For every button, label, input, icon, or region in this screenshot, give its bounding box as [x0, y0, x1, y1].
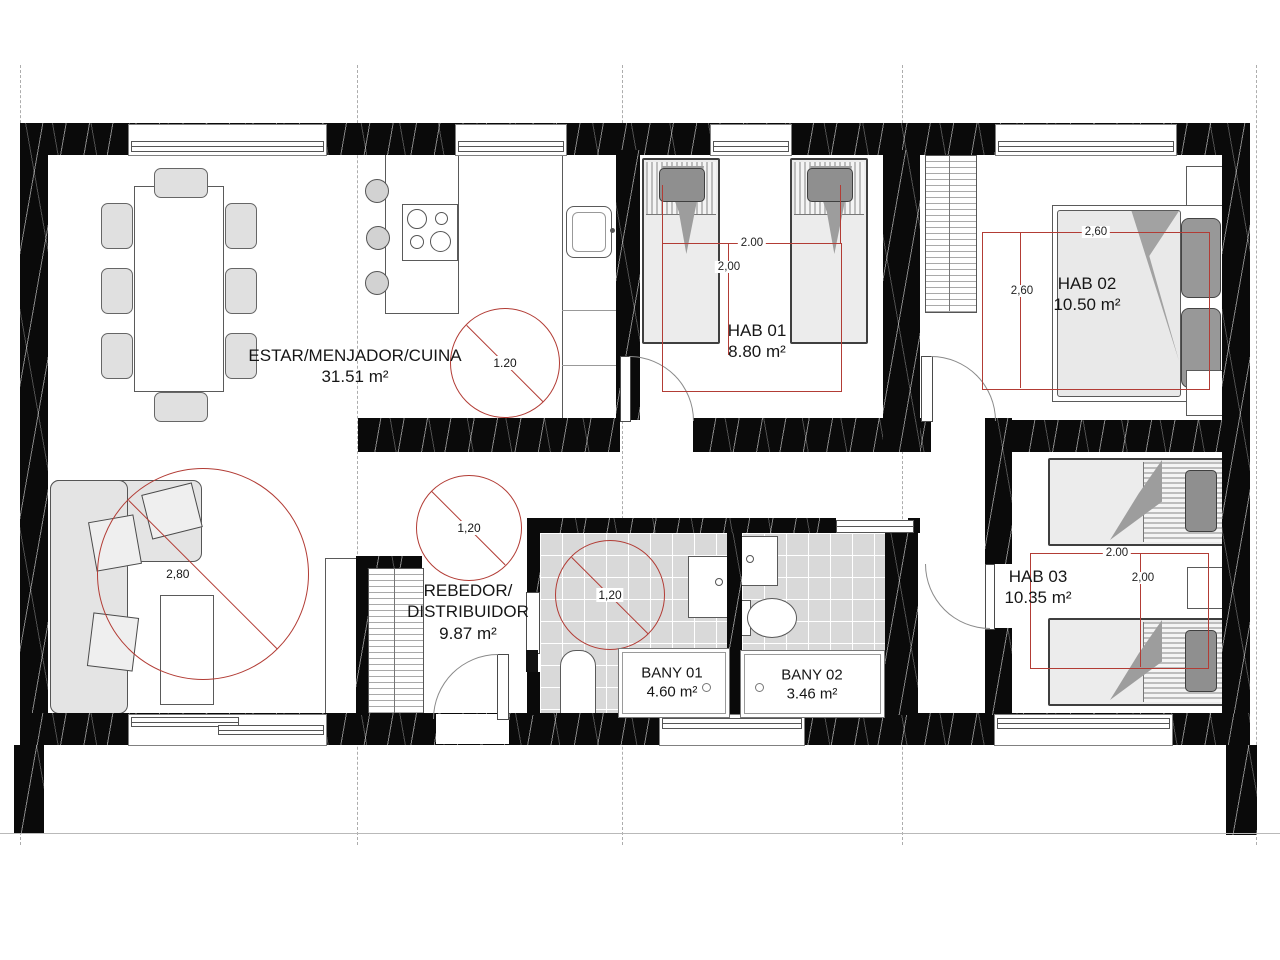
dining-chair — [154, 392, 208, 422]
washbasin — [738, 536, 778, 586]
room-name: BANY 02 — [781, 666, 842, 685]
room-label-hab03: HAB 03 10.35 m² — [1004, 566, 1071, 609]
room-area: 10.35 m² — [1004, 587, 1071, 608]
room-name: HAB 02 — [1053, 273, 1120, 294]
room-name: REBEDOR/ — [407, 580, 529, 601]
dining-chair — [101, 333, 133, 379]
room-label-bany01: BANY 01 4.60 m² — [641, 664, 702, 702]
toilet — [747, 598, 797, 638]
dining-chair — [101, 203, 133, 249]
dimension-label: 2,80 — [164, 567, 191, 581]
window-glazing — [662, 718, 802, 729]
dimension-line — [128, 500, 277, 649]
room-name: BANY 01 — [641, 664, 702, 683]
bar-stool — [365, 179, 389, 203]
bed-pillow — [1185, 470, 1217, 532]
window-glazing — [997, 718, 1170, 729]
room-area: 8.80 m² — [728, 341, 787, 362]
dimension-label: 2.00 — [1103, 547, 1131, 559]
dimension-label: 1.20 — [491, 356, 518, 370]
sink-faucet — [610, 228, 615, 233]
room-label-hab01: HAB 01 8.80 m² — [728, 320, 787, 363]
window-hab01 — [710, 124, 792, 156]
dimension-label: 1,20 — [455, 521, 482, 535]
closet-divider — [394, 568, 395, 714]
interior-wall-hall-north — [358, 418, 620, 452]
turning-circle-bany01: 1,20 — [555, 540, 665, 650]
burner — [407, 209, 427, 229]
dimension-line — [1140, 553, 1141, 667]
basin-faucet — [746, 555, 754, 563]
closet-wall — [356, 556, 422, 568]
terrace-wall-right — [1226, 745, 1257, 835]
dimension-label: 2,60 — [1008, 285, 1036, 297]
terrace-wall-left — [14, 745, 44, 833]
counter-divider — [562, 310, 617, 311]
bed-pillow — [659, 168, 705, 202]
floor-plan: 2,80 1.20 1,20 1,20 2.00 2,00 2,60 2,60 … — [0, 0, 1280, 960]
dining-table — [134, 186, 224, 392]
dining-chair — [225, 268, 257, 314]
window-hab02 — [995, 124, 1177, 156]
interior-wall-hab02-hab03 — [1012, 420, 1222, 452]
sliding-door-bany02 — [836, 520, 914, 533]
window-bany02 — [659, 714, 805, 746]
kitchen-counter — [562, 152, 619, 426]
turning-circle-hall: 1,20 — [416, 475, 522, 581]
dimension-label: 1,20 — [596, 588, 623, 602]
dimension-rect-hab01 — [662, 243, 842, 392]
room-name: DISTRIBUIDOR — [407, 601, 529, 622]
entrance-door-leaf — [497, 654, 509, 720]
ground-line — [0, 833, 1280, 834]
closet-wall — [356, 556, 368, 715]
dining-chair — [154, 168, 208, 198]
dining-chair — [225, 203, 257, 249]
window-living — [128, 124, 327, 156]
bathroom-wall-north — [540, 518, 836, 533]
sideboard — [325, 558, 359, 714]
bathroom-wall-west — [527, 672, 540, 715]
dimension-line — [662, 185, 663, 243]
washbasin — [688, 556, 728, 618]
sliding-glass-door-living — [128, 714, 327, 746]
room-label-hab02: HAB 02 10.50 m² — [1053, 273, 1120, 316]
room-area: 4.60 m² — [641, 683, 702, 702]
window-glazing — [998, 141, 1174, 152]
floor-drain — [702, 683, 711, 692]
window-glazing — [131, 141, 324, 152]
room-name: HAB 03 — [1004, 566, 1071, 587]
entrance-door-arc — [433, 654, 498, 719]
interior-wall-hab03-west — [985, 418, 1012, 564]
room-label-estar: ESTAR/MENJADOR/CUINA 31.51 m² — [248, 345, 461, 388]
counter-divider — [562, 365, 617, 366]
bathroom-wall-east — [885, 533, 918, 715]
bar-stool — [366, 226, 390, 250]
window-hab03 — [994, 714, 1173, 746]
dimension-line — [840, 185, 841, 243]
exterior-wall-left — [20, 123, 48, 745]
room-area: 31.51 m² — [248, 366, 461, 387]
window-kitchen — [455, 124, 567, 156]
room-name: ESTAR/MENJADOR/CUINA — [248, 345, 461, 366]
interior-wall-hab01-hab02 — [883, 150, 920, 452]
bar-stool — [365, 271, 389, 295]
window-glazing — [218, 725, 324, 735]
dimension-label: 2,00 — [1129, 572, 1157, 584]
room-area: 9.87 m² — [407, 623, 529, 644]
bed-pillow — [807, 168, 853, 202]
toilet — [560, 650, 596, 716]
wardrobe — [925, 155, 977, 313]
interior-wall-hab03-west — [985, 628, 1012, 715]
room-name: HAB 01 — [728, 320, 787, 341]
burner — [435, 212, 448, 225]
dimension-label: 2.00 — [738, 237, 766, 249]
burner — [430, 231, 451, 252]
dimension-label: 2,00 — [715, 261, 743, 273]
room-label-bany02: BANY 02 3.46 m² — [781, 666, 842, 704]
grid-line — [1256, 65, 1257, 845]
bathroom-wall-west — [527, 518, 540, 595]
door-arc-hab03 — [925, 564, 990, 629]
turning-circle-living: 2,80 — [97, 468, 309, 680]
window-glazing — [458, 141, 564, 152]
room-label-rebedor: REBEDOR/ DISTRIBUIDOR 9.87 m² — [407, 580, 529, 644]
room-area: 3.46 m² — [781, 685, 842, 704]
floor-drain — [755, 683, 764, 692]
sliding-door-pocket — [526, 650, 538, 672]
window-glazing — [713, 141, 789, 152]
single-bed — [1048, 458, 1226, 546]
room-area: 10.50 m² — [1053, 294, 1120, 315]
dimension-line — [1020, 232, 1021, 388]
basin-faucet — [715, 578, 723, 586]
turning-circle-kitchen: 1.20 — [450, 308, 560, 418]
dining-chair — [101, 268, 133, 314]
sink-basin — [572, 212, 606, 252]
burner — [410, 235, 424, 249]
wardrobe-divider — [949, 155, 950, 311]
dimension-label: 2,60 — [1082, 226, 1110, 238]
exterior-wall-right — [1222, 123, 1250, 745]
